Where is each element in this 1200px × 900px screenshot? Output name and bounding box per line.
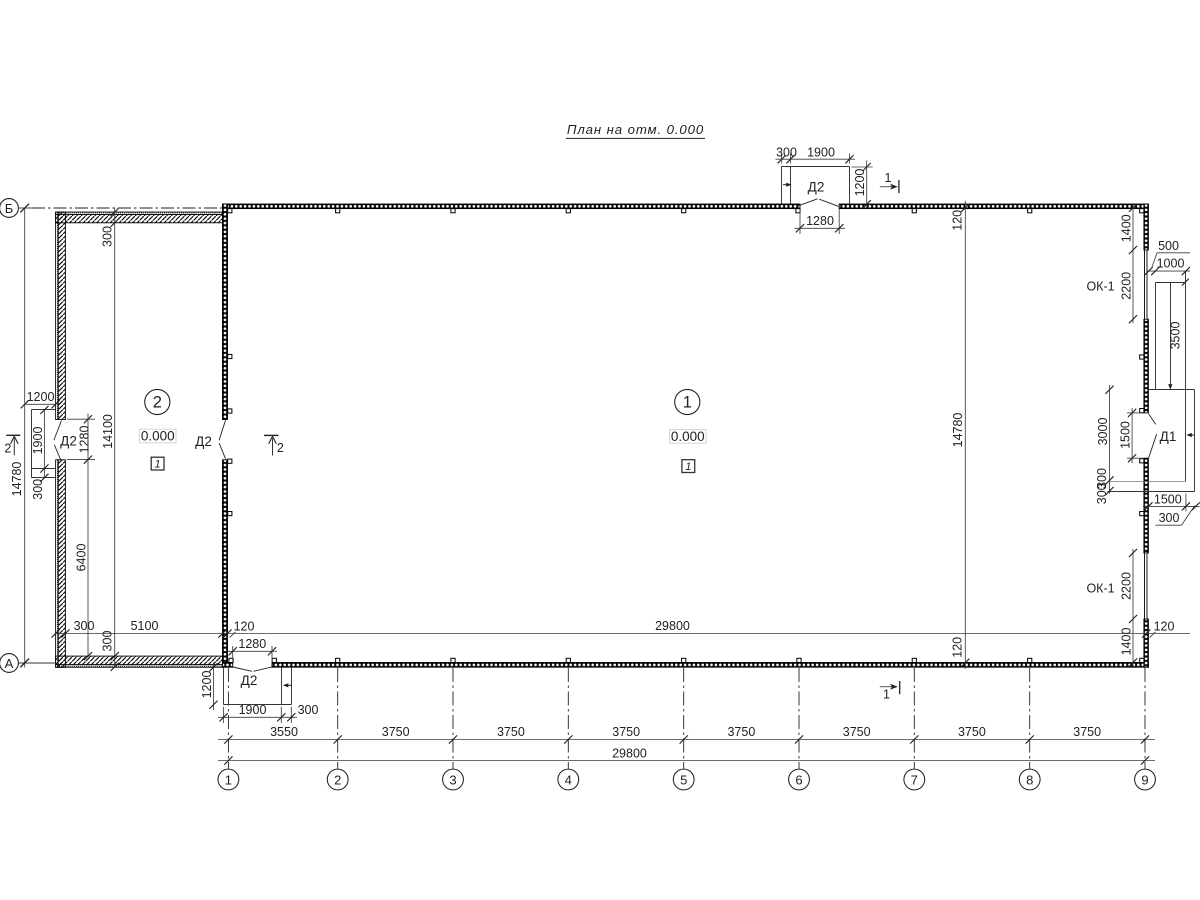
svg-text:План на отм. 0.000: План на отм. 0.000 xyxy=(567,122,704,137)
svg-text:300: 300 xyxy=(1095,483,1109,504)
svg-text:6400: 6400 xyxy=(75,544,89,572)
svg-text:3: 3 xyxy=(449,773,456,788)
svg-text:3750: 3750 xyxy=(382,725,410,739)
svg-text:2: 2 xyxy=(334,773,341,788)
svg-text:Д2: Д2 xyxy=(808,180,825,195)
svg-text:9: 9 xyxy=(1141,773,1148,788)
svg-text:1900: 1900 xyxy=(31,427,45,455)
svg-text:14780: 14780 xyxy=(10,462,24,497)
svg-text:300: 300 xyxy=(31,479,45,500)
svg-text:14780: 14780 xyxy=(951,413,965,448)
svg-text:500: 500 xyxy=(1158,239,1179,253)
svg-text:2200: 2200 xyxy=(1119,572,1133,600)
svg-text:1: 1 xyxy=(683,394,692,412)
svg-text:120: 120 xyxy=(951,210,965,231)
svg-text:Б: Б xyxy=(5,201,14,216)
svg-text:1: 1 xyxy=(885,171,892,185)
svg-text:1200: 1200 xyxy=(200,671,214,699)
svg-text:ОК-1: ОК-1 xyxy=(1086,280,1114,294)
svg-text:300: 300 xyxy=(298,703,319,717)
svg-text:1: 1 xyxy=(155,459,161,471)
svg-text:14100: 14100 xyxy=(101,414,115,449)
svg-text:3750: 3750 xyxy=(843,725,871,739)
svg-text:1280: 1280 xyxy=(806,214,834,228)
svg-text:Д2: Д2 xyxy=(241,673,258,688)
svg-text:2: 2 xyxy=(277,441,284,455)
svg-text:3500: 3500 xyxy=(1169,322,1183,350)
svg-text:120: 120 xyxy=(951,637,965,658)
svg-text:7: 7 xyxy=(911,773,918,788)
svg-text:4: 4 xyxy=(565,773,572,788)
svg-text:1200: 1200 xyxy=(853,169,867,197)
svg-text:2: 2 xyxy=(4,441,11,455)
svg-text:1900: 1900 xyxy=(239,703,267,717)
svg-text:1280: 1280 xyxy=(78,426,92,454)
svg-text:3750: 3750 xyxy=(612,725,640,739)
svg-text:1: 1 xyxy=(685,461,691,473)
svg-text:3550: 3550 xyxy=(270,725,298,739)
svg-text:ОК-1: ОК-1 xyxy=(1086,582,1114,596)
svg-text:Д1: Д1 xyxy=(1160,429,1177,444)
svg-text:1000: 1000 xyxy=(1157,257,1185,271)
svg-text:1: 1 xyxy=(225,773,232,788)
svg-text:6: 6 xyxy=(795,773,802,788)
svg-text:29800: 29800 xyxy=(655,619,690,633)
svg-text:3750: 3750 xyxy=(497,725,525,739)
svg-text:3750: 3750 xyxy=(727,725,755,739)
svg-text:1500: 1500 xyxy=(1119,421,1133,449)
svg-text:3750: 3750 xyxy=(1073,725,1101,739)
svg-text:1400: 1400 xyxy=(1119,214,1133,242)
svg-text:120: 120 xyxy=(234,620,255,634)
svg-text:300: 300 xyxy=(1159,511,1180,525)
svg-text:0.000: 0.000 xyxy=(671,429,705,444)
svg-text:1400: 1400 xyxy=(1119,628,1133,656)
svg-text:1200: 1200 xyxy=(27,390,55,404)
svg-text:8: 8 xyxy=(1026,773,1033,788)
svg-text:5: 5 xyxy=(680,773,687,788)
svg-text:3750: 3750 xyxy=(958,725,986,739)
svg-text:120: 120 xyxy=(1154,620,1175,634)
svg-text:Д2: Д2 xyxy=(60,434,77,449)
svg-text:29800: 29800 xyxy=(612,747,647,761)
svg-text:1500: 1500 xyxy=(1154,492,1182,506)
svg-text:300: 300 xyxy=(101,226,115,247)
svg-text:1: 1 xyxy=(883,688,890,702)
svg-text:А: А xyxy=(5,656,14,671)
svg-text:1280: 1280 xyxy=(238,637,266,651)
svg-text:0.000: 0.000 xyxy=(141,429,175,444)
svg-text:300: 300 xyxy=(74,619,95,633)
svg-text:2200: 2200 xyxy=(1119,272,1133,300)
svg-text:2: 2 xyxy=(153,394,162,412)
svg-text:Д2: Д2 xyxy=(195,434,212,449)
svg-text:5100: 5100 xyxy=(131,619,159,633)
svg-text:1900: 1900 xyxy=(807,145,835,159)
svg-text:300: 300 xyxy=(776,145,797,159)
svg-text:3000: 3000 xyxy=(1096,418,1110,446)
